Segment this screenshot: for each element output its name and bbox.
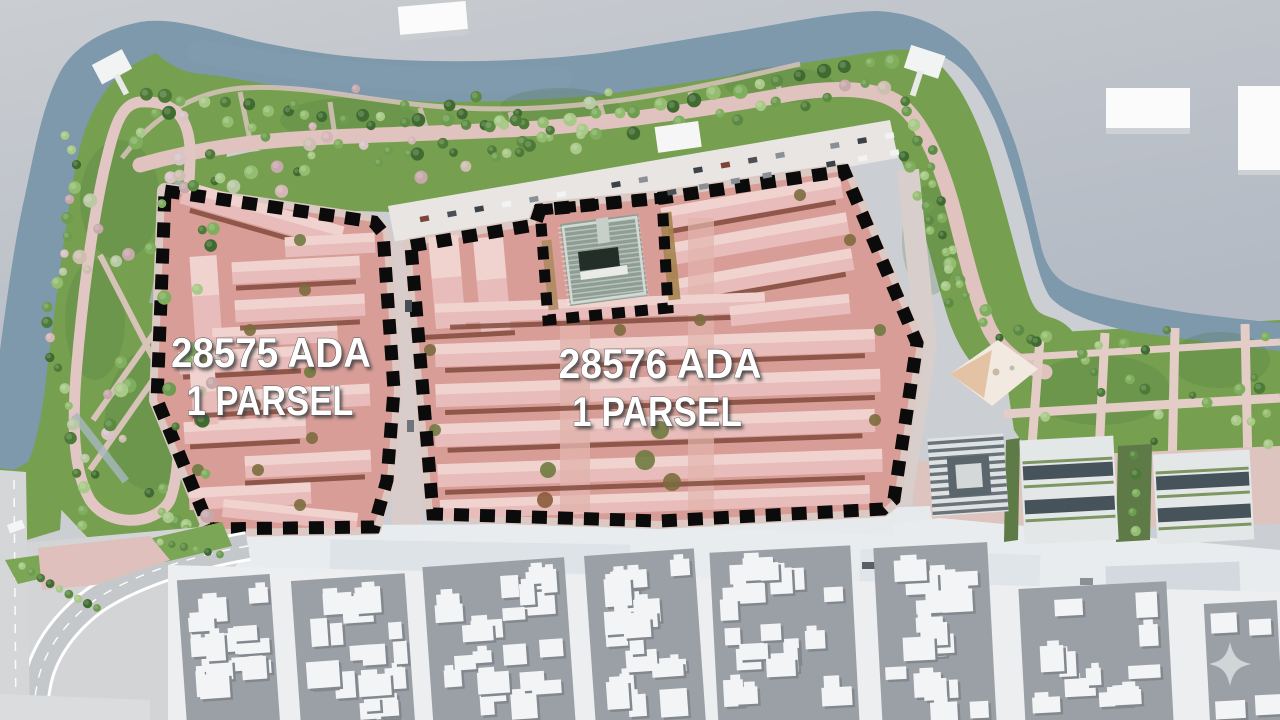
svg-text:28576 ADA: 28576 ADA	[559, 340, 762, 387]
svg-text:28575 ADA: 28575 ADA	[171, 329, 371, 376]
svg-text:1 PARSEL: 1 PARSEL	[572, 388, 742, 435]
svg-text:1 PARSEL: 1 PARSEL	[187, 377, 354, 424]
